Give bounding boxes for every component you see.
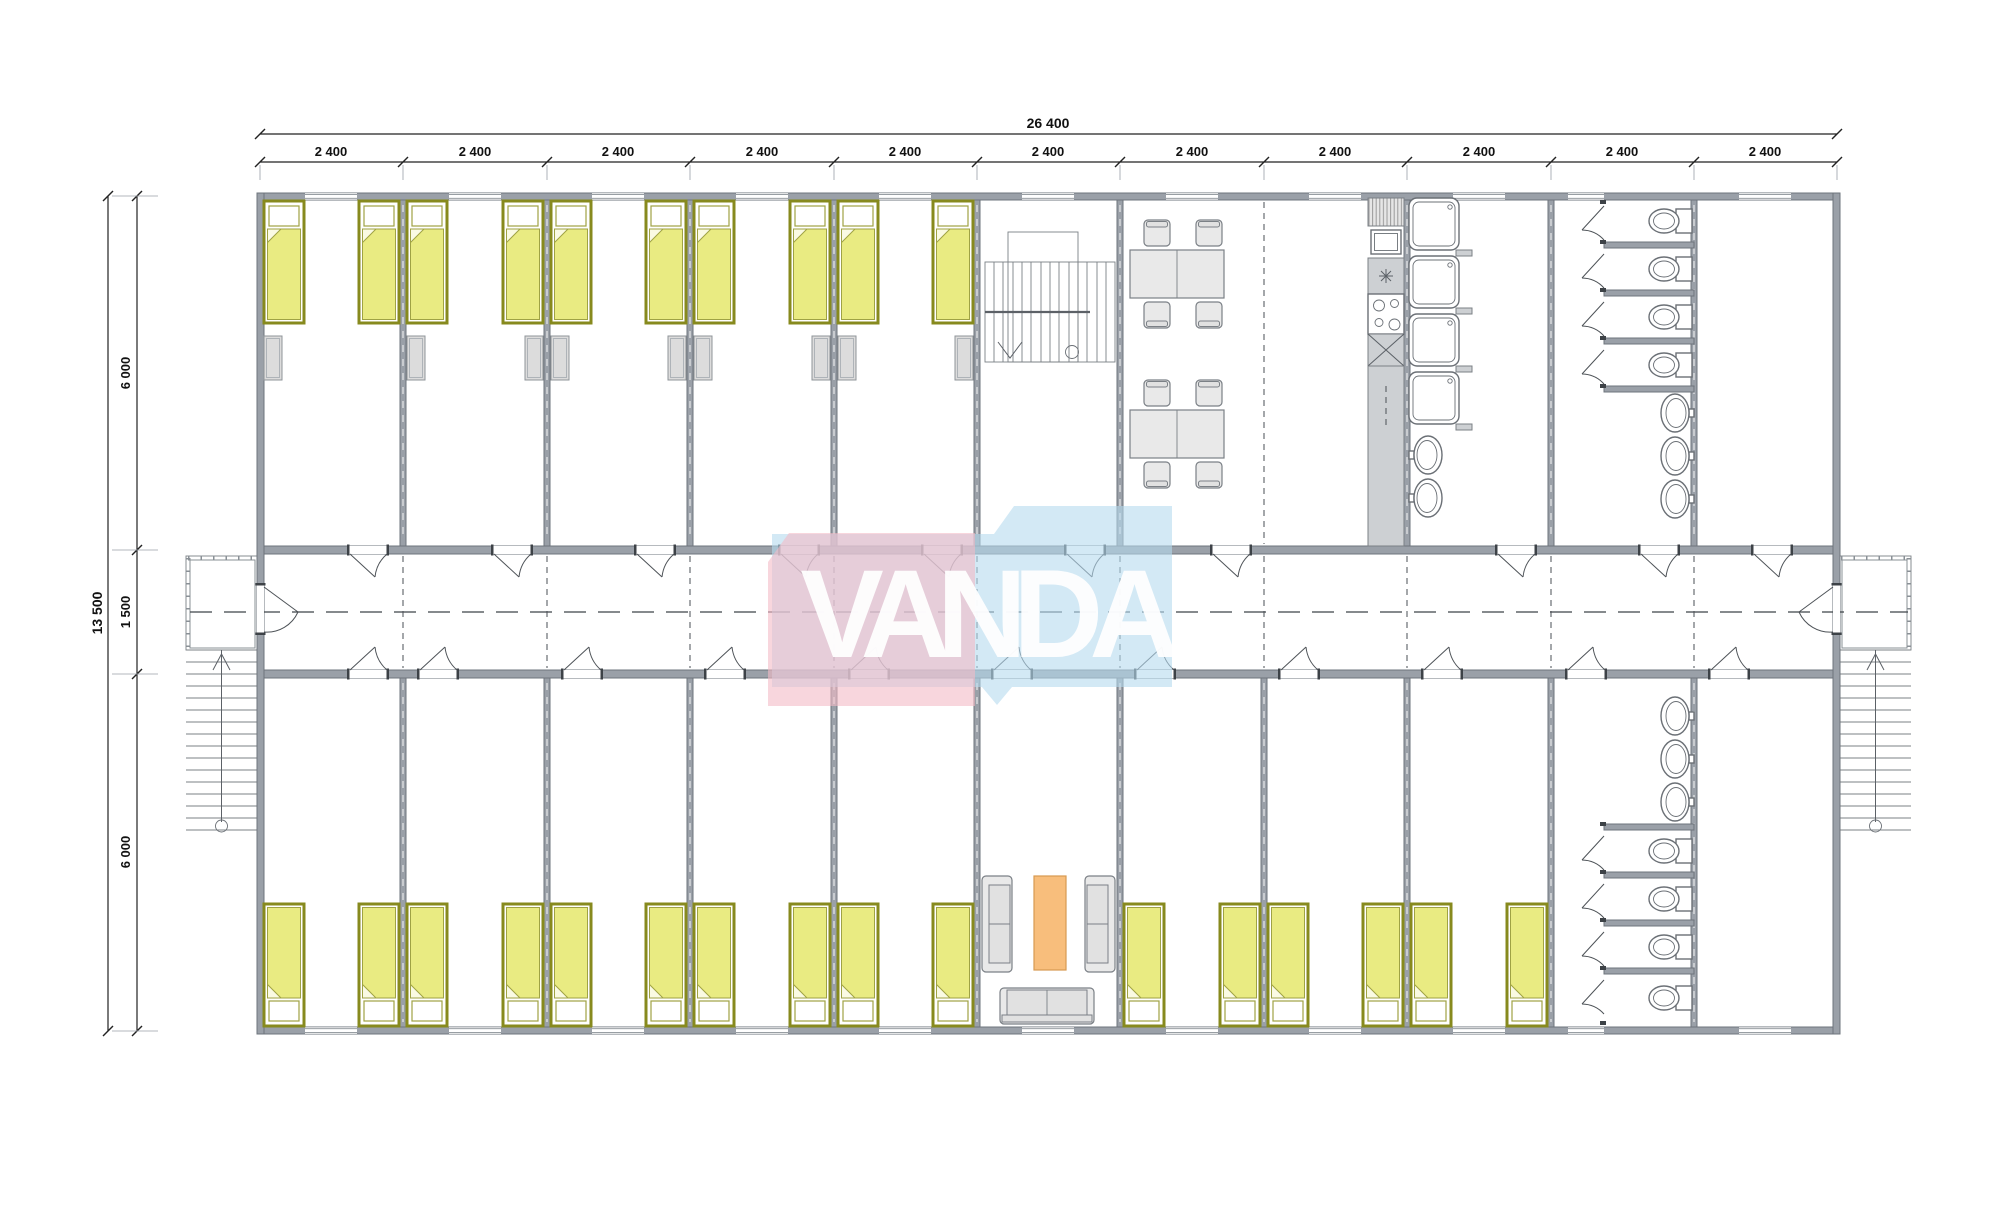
- wash-basin: [1661, 740, 1694, 778]
- floor-plan-drawing: 26 400 2 400 2 400 2 400 2 400 2 400 2 4…: [0, 0, 2000, 1215]
- partition-walls-top: [400, 200, 1697, 546]
- toilet: [1649, 887, 1692, 911]
- toilet-room-top: [1582, 200, 1694, 518]
- bed: [933, 904, 973, 1026]
- floor-plan-page: 26 400 2 400 2 400 2 400 2 400 2 400 2 4…: [0, 0, 2000, 1215]
- dim-module: 2 400: [459, 144, 492, 159]
- beds-top: [264, 201, 973, 323]
- dim-module: 2 400: [1319, 144, 1352, 159]
- door-storage: [1751, 545, 1793, 578]
- toilet: [1649, 353, 1692, 377]
- dim-module: 2 400: [1032, 144, 1065, 159]
- door: [491, 545, 533, 578]
- toilet: [1649, 986, 1692, 1010]
- wash-basin: [1409, 479, 1442, 517]
- wardrobe: [264, 336, 282, 380]
- wash-basin: [1661, 783, 1694, 821]
- bed: [1507, 904, 1547, 1026]
- bed: [646, 201, 686, 323]
- toilet: [1649, 209, 1692, 233]
- rug: [1034, 876, 1066, 970]
- door: [417, 647, 459, 680]
- bed: [407, 904, 447, 1026]
- armchair: [1085, 876, 1115, 972]
- wardrobe: [525, 336, 543, 380]
- dim-module: 2 400: [746, 144, 779, 159]
- toilet: [1649, 305, 1692, 329]
- bed: [551, 201, 591, 323]
- bed: [503, 201, 543, 323]
- bed: [838, 201, 878, 323]
- dining-table-set: [1130, 220, 1224, 328]
- bed: [790, 201, 830, 323]
- toilet: [1649, 839, 1692, 863]
- bed: [1363, 904, 1403, 1026]
- beds-bottom: [264, 904, 1547, 1026]
- wardrobe: [694, 336, 712, 380]
- logo-text: VANDA: [800, 545, 1176, 684]
- kitchen-cooktop: [1368, 294, 1404, 334]
- dining-area: [1130, 220, 1224, 488]
- toilet: [1649, 257, 1692, 281]
- bed: [694, 201, 734, 323]
- door-toilets: [1638, 545, 1680, 578]
- shower-unit: [1409, 198, 1459, 250]
- kitchen: [1368, 198, 1404, 546]
- bed: [264, 201, 304, 323]
- external-stair-right: [1840, 556, 1911, 832]
- kitchen-boiler: [1368, 258, 1404, 294]
- door: [561, 647, 603, 680]
- watermark-logo: VANDA: [768, 506, 1176, 706]
- shower-unit: [1409, 372, 1459, 424]
- bed: [407, 201, 447, 323]
- dim-segment: 1 500: [118, 596, 133, 629]
- door-dining: [1210, 545, 1252, 578]
- shower-unit: [1409, 314, 1459, 366]
- bed: [1220, 904, 1260, 1026]
- bed: [503, 904, 543, 1026]
- dim-module: 2 400: [602, 144, 635, 159]
- door-showers: [1495, 545, 1537, 578]
- dim-segment: 6 000: [118, 357, 133, 390]
- door: [347, 647, 389, 680]
- wardrobe: [812, 336, 830, 380]
- wardrobe: [668, 336, 686, 380]
- bed: [1124, 904, 1164, 1026]
- bed: [359, 201, 399, 323]
- bed: [359, 904, 399, 1026]
- internal-staircase: [985, 232, 1115, 362]
- wardrobes: [264, 336, 973, 380]
- dim-module: 2 400: [1176, 144, 1209, 159]
- bed: [1411, 904, 1451, 1026]
- bed: [264, 904, 304, 1026]
- dim-total-width: 26 400: [1027, 115, 1070, 131]
- dim-module: 2 400: [1749, 144, 1782, 159]
- door: [1421, 647, 1463, 680]
- entrance-door-right: [1799, 583, 1842, 635]
- partition-walls-bottom: [400, 678, 1697, 1027]
- wardrobe: [838, 336, 856, 380]
- wash-basin: [1409, 436, 1442, 474]
- dining-table-set: [1130, 380, 1224, 488]
- entrance-door-left: [256, 583, 299, 635]
- bed: [646, 904, 686, 1026]
- toilet: [1649, 935, 1692, 959]
- door: [634, 545, 676, 578]
- bed: [1268, 904, 1308, 1026]
- bed: [790, 904, 830, 1026]
- wardrobe: [551, 336, 569, 380]
- bed: [694, 904, 734, 1026]
- sofa: [1000, 988, 1094, 1024]
- dim-module: 2 400: [889, 144, 922, 159]
- shower-unit: [1409, 256, 1459, 308]
- bed: [551, 904, 591, 1026]
- door: [704, 647, 746, 680]
- wash-basin: [1661, 697, 1694, 735]
- toilet-room-bottom: [1582, 697, 1694, 1025]
- door: [347, 545, 389, 578]
- dim-total-height: 13 500: [89, 591, 105, 634]
- door-toilets: [1565, 647, 1607, 680]
- kitchen-sink-unit: [1368, 334, 1404, 366]
- kitchen-vent: [1368, 198, 1404, 226]
- dim-module: 2 400: [315, 144, 348, 159]
- wardrobe: [407, 336, 425, 380]
- wash-basin: [1661, 480, 1694, 518]
- kitchen-counter: [1368, 366, 1404, 546]
- shower-room: [1409, 198, 1472, 517]
- bed: [933, 201, 973, 323]
- wardrobe: [955, 336, 973, 380]
- dim-module: 2 400: [1606, 144, 1639, 159]
- wash-basin: [1661, 437, 1694, 475]
- armchair: [982, 876, 1012, 972]
- dim-segment: 6 000: [118, 836, 133, 869]
- door: [1278, 647, 1320, 680]
- bed: [838, 904, 878, 1026]
- external-stair-left: [186, 556, 257, 832]
- wash-basin: [1661, 394, 1694, 432]
- lounge: [982, 876, 1115, 1024]
- dim-module: 2 400: [1463, 144, 1496, 159]
- door-storage: [1708, 647, 1750, 680]
